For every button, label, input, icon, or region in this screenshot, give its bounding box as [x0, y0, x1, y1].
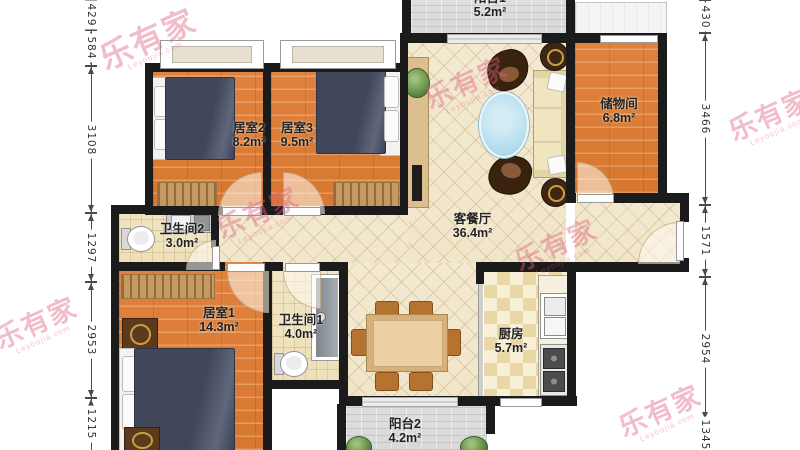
kitchen-window — [500, 398, 542, 407]
room-label-storage: 储物间 6.8m² — [588, 97, 650, 125]
room-name: 卫生间2 — [151, 222, 213, 236]
dimension-label: 3466 — [699, 101, 711, 138]
sofa-pillow — [547, 155, 568, 176]
wall — [486, 404, 495, 434]
room-area: 6.8m² — [588, 111, 650, 125]
room-area: 14.3m² — [190, 320, 248, 334]
wall — [263, 380, 348, 389]
room-label-bath1: 卫生间1 4.0m² — [272, 313, 330, 341]
door-leaf — [227, 263, 265, 272]
room-name: 厨房 — [486, 327, 536, 341]
wall — [566, 33, 575, 203]
dining-chair — [409, 372, 433, 391]
room-label-bedroom3: 居室3 9.5m² — [268, 121, 326, 149]
floorplan-image: 阳台1 5.2m² 居室2 8.2m² 居室3 9.5m² 储物间 6.8m² … — [0, 0, 800, 450]
wall — [400, 33, 408, 215]
bedroom2-rug — [157, 182, 217, 209]
dimension-label: 584 — [85, 33, 97, 62]
entry-door-leaf — [676, 221, 684, 261]
nightstand — [124, 427, 160, 450]
room-label-bedroom1: 居室1 14.3m² — [190, 306, 248, 334]
dimension-label: 430 — [699, 2, 711, 31]
nightstand — [122, 318, 158, 350]
coffee-table — [479, 92, 529, 158]
wall — [612, 193, 688, 203]
ac-platform — [575, 2, 667, 35]
room-area: 3.0m² — [151, 236, 213, 250]
window-sill — [292, 46, 384, 63]
dimension-label: 3108 — [85, 121, 97, 158]
room-name: 居室1 — [190, 306, 248, 320]
room-name: 卫生间1 — [272, 313, 330, 327]
door-leaf — [212, 246, 220, 270]
room-area: 5.2m² — [455, 5, 525, 19]
room-area: 9.5m² — [268, 135, 326, 149]
wall — [337, 404, 346, 450]
toilet — [274, 351, 306, 375]
bed3-blanket — [316, 70, 386, 154]
bed3-pillow — [384, 76, 399, 108]
bedroom1-rug — [121, 274, 215, 299]
room-label-bath2: 卫生间2 3.0m² — [151, 222, 213, 250]
room-name: 储物间 — [588, 97, 650, 111]
dimension-label: 1345 — [699, 417, 711, 450]
side-table — [540, 42, 569, 71]
room-area: 36.4m² — [430, 226, 515, 240]
wall — [658, 33, 667, 203]
balcony2-sliding-door — [362, 397, 458, 407]
room-area: 4.0m² — [272, 327, 330, 341]
dimension-label: 2954 — [699, 330, 711, 367]
wall — [566, 193, 576, 203]
toilet — [121, 226, 153, 250]
dining-chair — [375, 372, 399, 391]
door-leaf — [577, 194, 614, 203]
dimension-label: 1571 — [699, 223, 711, 260]
dining-table — [366, 314, 448, 372]
wall — [476, 272, 484, 284]
wall — [111, 205, 153, 214]
dimension-label: 1215 — [85, 406, 97, 443]
dimension-label: 2953 — [85, 322, 97, 359]
wall — [260, 206, 283, 215]
wall — [111, 205, 119, 450]
room-name: 客餐厅 — [430, 212, 515, 226]
bedroom3-rug — [333, 182, 399, 209]
wall — [320, 206, 408, 215]
room-name: 阳台2 — [376, 417, 434, 431]
room-name: 居室3 — [268, 121, 326, 135]
watermark: 乐有家 Leyoujia.com — [710, 79, 800, 160]
room-area: 4.2m² — [376, 431, 434, 445]
room-label-balcony2: 阳台2 4.2m² — [376, 417, 434, 445]
window-sill — [172, 46, 252, 63]
room-label-living: 客餐厅 36.4m² — [430, 212, 515, 240]
storage-window — [600, 35, 658, 43]
bed3-pillow — [384, 110, 399, 142]
room-area: 5.7m² — [486, 341, 536, 355]
wall — [680, 193, 689, 222]
wall — [145, 63, 153, 215]
room-label-kitchen: 厨房 5.7m² — [486, 327, 536, 355]
dimension-label: 429 — [85, 0, 97, 29]
kitchen-sink — [540, 293, 568, 339]
door-leaf — [222, 207, 261, 216]
kitchen-stove — [540, 344, 568, 396]
room-label-balcony1: 阳台1 5.2m² — [455, 0, 525, 19]
kitchen-glass-partition — [478, 284, 483, 396]
balcony1-sliding-door — [447, 34, 542, 44]
door-leaf — [284, 207, 321, 216]
dimension-label: 1297 — [85, 229, 97, 266]
tv — [412, 165, 422, 201]
door-leaf — [285, 263, 320, 272]
sofa-pillow — [546, 71, 567, 92]
wall — [567, 262, 576, 406]
